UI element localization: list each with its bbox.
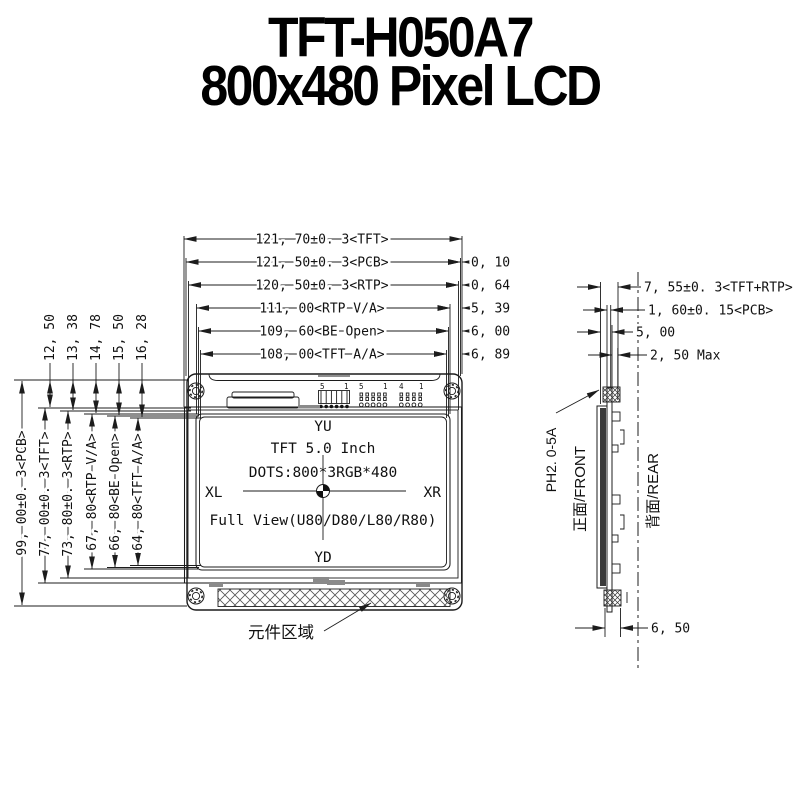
side-connector-bottom xyxy=(604,590,621,606)
dim-pcb-width: 121, 50±0. 3<PCB> xyxy=(255,256,388,271)
right-offset-dims: 0, 10 0, 64 5, 39 6, 00 6, 89 xyxy=(424,256,510,363)
drawing-canvas: TFT-H050A7 800x480 Pixel LCD 5 1 xyxy=(0,0,800,800)
side-extension-lines xyxy=(601,282,619,404)
dim-tft-aa-width: 108, 00<TFT A/A> xyxy=(259,348,384,363)
screen-label-xr: XR xyxy=(424,485,442,501)
dim-side-pcb: 1, 60±0. 15<PCB> xyxy=(648,304,773,319)
drawing-page: TFT-H050A7 800x480 Pixel LCD 5 1 xyxy=(0,0,800,800)
dim-side-tft-rtp: 7, 55±0. 3<TFT+RTP> xyxy=(644,281,793,296)
dim-tft-aa-height: 64, 80<TFT A/A> xyxy=(131,433,146,551)
dim-be-open-height: 66, 80<BE Open> xyxy=(108,433,123,551)
dim-offset-tft-top: 12, 50 xyxy=(43,314,58,361)
left-main-dims: 99, 00±0. 3<PCB> 77, 00±0. 3<TFT> 73, 80… xyxy=(15,381,146,605)
dim-rtp-width: 120, 50±0. 3<RTP> xyxy=(255,279,388,294)
pin3-label-1: 1 xyxy=(419,382,424,391)
frame-step-top xyxy=(209,374,440,381)
dim-offset-rtp-va-top: 14, 78 xyxy=(89,314,104,361)
fpc-connector xyxy=(227,392,299,408)
screen-markings: YU TFT 5.0 Inch DOTS:800*3RGB*480 XL XR … xyxy=(205,419,441,566)
left-dimensions: 12, 50 13, 38 14, 78 15, 50 16, 28 99, 0… xyxy=(14,314,201,606)
side-rear-label: 背面/REAR xyxy=(645,453,662,529)
pin1-label-1: 1 xyxy=(344,382,349,391)
pin2-label-5: 5 xyxy=(359,382,364,391)
offset-rtp: 0, 64 xyxy=(471,279,510,294)
dim-be-open-width: 109, 60<BE Open> xyxy=(259,325,384,340)
component-area-label: 元件区域 xyxy=(248,623,314,642)
side-front-label: 正面/FRONT xyxy=(572,446,589,532)
side-connector-leader xyxy=(556,390,599,413)
dim-tft-height: 77, 00±0. 3<TFT> xyxy=(38,431,53,556)
pin-header-3: 4 1 xyxy=(399,382,424,407)
side-glass-fill xyxy=(600,408,606,586)
page-title: TFT-H050A7 800x480 Pixel LCD xyxy=(200,7,600,118)
dim-rtp-height: 73, 80±0. 3<RTP> xyxy=(61,431,76,556)
offset-tft-aa: 6, 89 xyxy=(471,348,510,363)
dim-pcb-height: 99, 00±0. 3<PCB> xyxy=(15,430,30,555)
pin-header-2: 5 1 xyxy=(359,382,388,407)
screen-label-xl: XL xyxy=(205,485,223,501)
dim-side-component-max: 2, 50 Max xyxy=(650,349,721,364)
dim-offset-rtp-top: 13, 38 xyxy=(66,314,81,361)
component-area-hatch xyxy=(218,589,450,607)
mounting-hole-bottom-left xyxy=(188,588,204,604)
screen-label-yu: YU xyxy=(314,419,331,435)
dim-side-total: 5, 00 xyxy=(636,326,675,341)
dim-side-connector-width: 6, 50 xyxy=(651,622,690,637)
offset-pcb: 0, 10 xyxy=(471,256,510,271)
component-area-leader xyxy=(324,603,371,631)
dim-tft-width: 121, 70±0. 3<TFT> xyxy=(255,233,388,248)
center-datum-symbol xyxy=(317,485,330,498)
offset-rtp-va: 5, 39 xyxy=(471,302,510,317)
mounting-hole-top-left xyxy=(188,383,204,399)
left-small-dims: 12, 50 13, 38 14, 78 15, 50 16, 28 xyxy=(43,314,150,417)
screen-size-text: TFT 5.0 Inch xyxy=(271,441,376,457)
side-connector-label: PH2. 0-5A xyxy=(543,427,559,492)
screen-label-yd: YD xyxy=(314,550,331,566)
dim-rtp-va-width: 111, 00<RTP V/A> xyxy=(259,302,384,317)
offset-be-open: 6, 00 xyxy=(471,325,510,340)
pin1-label-5: 5 xyxy=(320,382,325,391)
side-rear-components xyxy=(612,412,627,603)
dim-offset-be-top: 15, 50 xyxy=(112,314,127,361)
side-bottom-dim: 6, 50 xyxy=(575,608,690,637)
pin2-label-1: 1 xyxy=(383,382,388,391)
front-view: 5 1 5 1 xyxy=(185,374,463,642)
dim-rtp-va-height: 67, 80<RTP V/A> xyxy=(85,433,100,551)
pin3-label-4: 4 xyxy=(399,382,404,391)
dim-offset-aa-top: 16, 28 xyxy=(135,314,150,361)
side-pcb xyxy=(607,388,612,612)
title-resolution: 800x480 Pixel LCD xyxy=(200,55,600,117)
